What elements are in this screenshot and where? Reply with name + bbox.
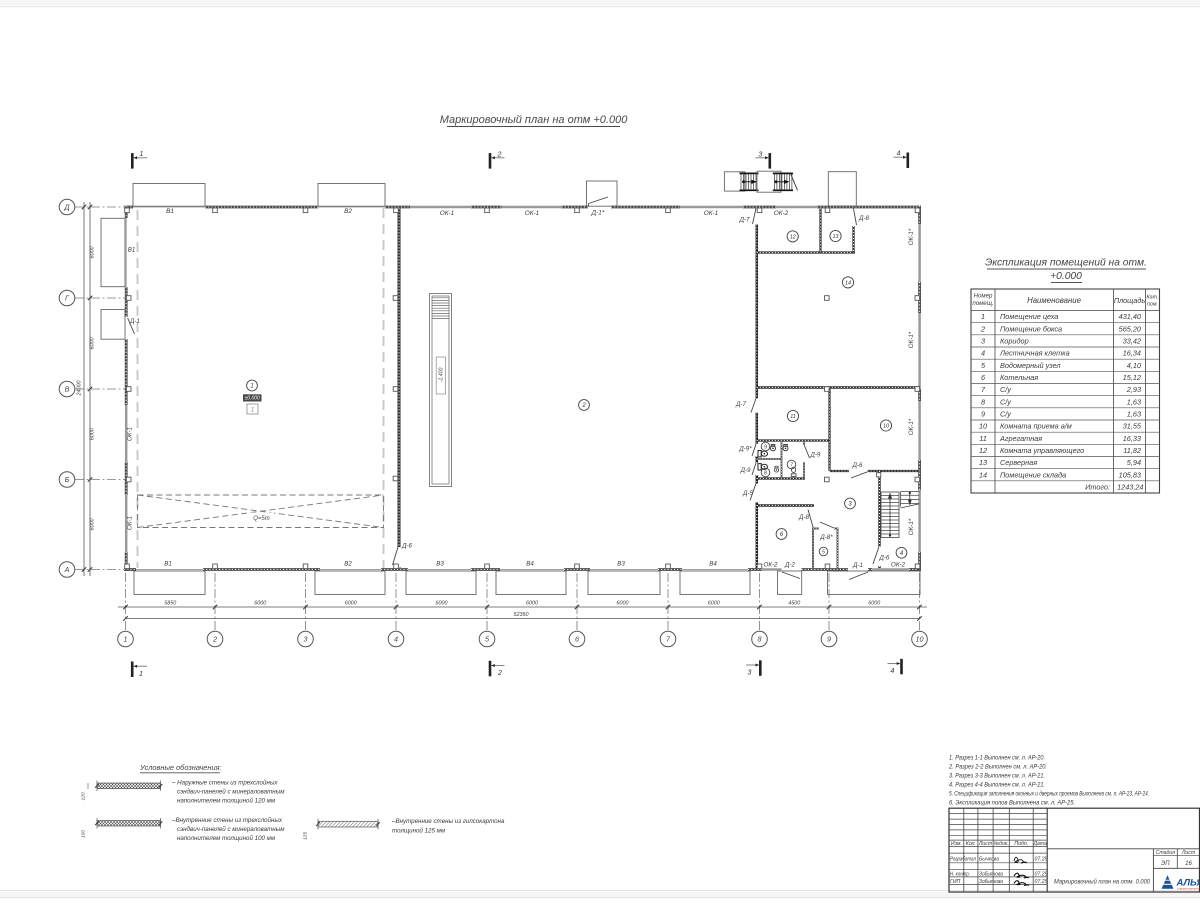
- svg-text:4: 4: [394, 635, 398, 644]
- svg-text:6000: 6000: [90, 519, 96, 531]
- svg-text:В4: В4: [709, 561, 717, 568]
- svg-text:Номер: Номер: [974, 293, 993, 300]
- svg-text:1,63: 1,63: [1127, 410, 1141, 419]
- svg-text:6000: 6000: [345, 601, 357, 607]
- svg-text:13: 13: [979, 458, 987, 467]
- svg-text:Помещение цеха: Помещение цеха: [1000, 312, 1058, 321]
- svg-text:Д-2: Д-2: [784, 562, 795, 569]
- svg-text:Д-1: Д-1: [129, 318, 140, 325]
- svg-text:Площадь: Площадь: [1114, 296, 1145, 305]
- svg-text:С/у: С/у: [1000, 385, 1012, 394]
- svg-text:С/у: С/у: [1000, 397, 1012, 406]
- svg-text:9: 9: [981, 410, 985, 419]
- svg-text:6000: 6000: [436, 601, 448, 607]
- svg-text:Д-7: Д-7: [735, 401, 746, 408]
- svg-text:6000: 6000: [868, 601, 880, 607]
- svg-text:6000: 6000: [254, 601, 266, 607]
- svg-text:С/у: С/у: [1000, 410, 1012, 419]
- svg-text:ОК-1: ОК-1: [704, 210, 719, 217]
- svg-text:Лист: Лист: [1181, 850, 1196, 856]
- svg-text:сэндвич-панелей с минераловатн: сэндвич-панелей с минераловатным: [177, 789, 285, 796]
- svg-text:В: В: [65, 385, 70, 394]
- svg-text:4500: 4500: [788, 601, 800, 607]
- svg-text:Агрегатная: Агрегатная: [999, 434, 1042, 443]
- svg-text:В2: В2: [344, 208, 352, 215]
- svg-text:Серверная: Серверная: [1000, 458, 1037, 467]
- svg-text:+0.000: +0.000: [1050, 271, 1082, 282]
- svg-text:Подп.: Подп.: [1014, 841, 1028, 847]
- svg-text:07.25: 07.25: [1035, 872, 1048, 878]
- svg-text:№док.: №док.: [994, 841, 1009, 847]
- svg-text:Коридор: Коридор: [1000, 337, 1029, 346]
- svg-text:наполнителем толщиной 100 мм: наполнителем толщиной 100 мм: [177, 835, 276, 842]
- svg-text:2: 2: [212, 635, 217, 644]
- svg-text:– Наружные стены из трехслойны: – Наружные стены из трехслойных: [171, 780, 278, 787]
- svg-text:15,12: 15,12: [1123, 373, 1141, 382]
- svg-text:1: 1: [140, 151, 144, 158]
- svg-text:Д: Д: [63, 203, 69, 212]
- svg-text:ОК-2: ОК-2: [774, 210, 789, 217]
- svg-text:Д-8*: Д-8*: [819, 534, 833, 541]
- svg-text:4: 4: [890, 668, 894, 675]
- svg-text:Кол.: Кол.: [966, 841, 976, 847]
- svg-text:31,55: 31,55: [1123, 422, 1142, 431]
- svg-text:Комната управляющего: Комната управляющего: [1000, 446, 1084, 455]
- svg-text:52350: 52350: [514, 612, 529, 618]
- svg-text:5. Спецификация заполнения око: 5. Спецификация заполнения оконных и две…: [949, 790, 1149, 798]
- svg-text:В4: В4: [526, 561, 534, 568]
- svg-text:Д-7: Д-7: [739, 217, 750, 224]
- svg-text:ОК-1: ОК-1: [525, 210, 540, 217]
- svg-text:Д-1: Д-1: [852, 562, 863, 569]
- svg-text:Разработал: Разработал: [950, 857, 976, 863]
- svg-text:Лестничная клетка: Лестничная клетка: [999, 349, 1070, 358]
- svg-text:2,93: 2,93: [1126, 385, 1141, 394]
- svg-text:07.25: 07.25: [1035, 857, 1048, 863]
- svg-text:11: 11: [790, 414, 796, 420]
- svg-text:6000: 6000: [90, 428, 96, 440]
- svg-text:9: 9: [827, 635, 831, 644]
- svg-text:105,83: 105,83: [1119, 470, 1141, 479]
- svg-text:6000: 6000: [90, 247, 96, 259]
- svg-text:Помещение бокса: Помещение бокса: [1000, 324, 1062, 333]
- svg-text:Д-9: Д-9: [740, 467, 751, 474]
- svg-text:Q=5т: Q=5т: [253, 516, 270, 522]
- svg-text:Бычкова: Бычкова: [979, 857, 999, 863]
- svg-text:16,34: 16,34: [1123, 349, 1141, 358]
- svg-text:Экспликация помещений на отм.: Экспликация помещений на отм.: [985, 258, 1147, 269]
- svg-text:2: 2: [581, 403, 586, 409]
- svg-text:6000: 6000: [708, 601, 720, 607]
- svg-text:12: 12: [790, 235, 796, 241]
- svg-text:Изм.: Изм.: [951, 841, 962, 847]
- svg-text:11: 11: [979, 434, 987, 443]
- svg-text:Д-5: Д-5: [742, 490, 753, 497]
- svg-text:помещ.: помещ.: [972, 300, 993, 307]
- svg-text:565,20: 565,20: [1119, 324, 1141, 333]
- svg-text:4: 4: [981, 349, 985, 358]
- svg-text:В2: В2: [344, 561, 352, 568]
- svg-text:6: 6: [575, 635, 579, 644]
- svg-text:07.25: 07.25: [1035, 879, 1048, 885]
- svg-text:125: 125: [303, 832, 309, 840]
- svg-text:±0.000: ±0.000: [245, 396, 260, 402]
- svg-text:Дата: Дата: [1032, 841, 1047, 847]
- svg-text:10: 10: [916, 635, 924, 644]
- svg-text:1: 1: [139, 671, 143, 678]
- svg-text:6000: 6000: [90, 338, 96, 350]
- svg-text:9: 9: [764, 444, 767, 450]
- svg-text:Д-6: Д-6: [879, 555, 890, 562]
- svg-text:1243,24: 1243,24: [1117, 483, 1143, 492]
- svg-text:наполнителем толщиной 120 мм: наполнителем толщиной 120 мм: [177, 798, 276, 805]
- svg-text:4: 4: [897, 151, 901, 158]
- svg-text:–Внутренние стены из трехслойн: –Внутренние стены из трехслойных: [171, 817, 283, 824]
- svg-text:Итого:: Итого:: [1085, 483, 1110, 492]
- svg-text:33,42: 33,42: [1123, 337, 1141, 346]
- svg-text:–Внутренние стены из гипсокарт: –Внутренние стены из гипсокартона: [391, 818, 505, 825]
- svg-text:Д-8: Д-8: [858, 215, 869, 222]
- svg-text:Кат.: Кат.: [1147, 295, 1159, 301]
- svg-text:11,82: 11,82: [1123, 446, 1141, 455]
- svg-text:100: 100: [81, 830, 87, 838]
- svg-text:3: 3: [748, 669, 752, 676]
- svg-text:Водомерный узел: Водомерный узел: [1000, 361, 1061, 370]
- svg-text:1: 1: [250, 384, 253, 390]
- svg-text:Наименование: Наименование: [1027, 296, 1081, 305]
- svg-text:10: 10: [979, 422, 987, 431]
- svg-text:ЭП: ЭП: [1161, 861, 1170, 867]
- svg-text:1: 1: [124, 635, 128, 644]
- svg-text:Зобьянова: Зобьянова: [979, 879, 1003, 885]
- svg-text:В1: В1: [166, 208, 174, 215]
- svg-text:ОК-1*: ОК-1*: [908, 418, 915, 435]
- svg-text:6000: 6000: [526, 601, 538, 607]
- svg-text:Условные обозначения:: Условные обозначения:: [139, 763, 222, 772]
- svg-text:13: 13: [833, 234, 839, 240]
- svg-text:сэндвич-панелей с минераловатн: сэндвич-панелей с минераловатным: [177, 826, 285, 833]
- svg-text:1: 1: [251, 408, 254, 414]
- svg-text:Комната приема а/м: Комната приема а/м: [1000, 422, 1072, 431]
- svg-text:В3: В3: [436, 561, 444, 568]
- svg-text:пом.: пом.: [1147, 302, 1158, 308]
- svg-text:Котельная: Котельная: [1000, 373, 1038, 382]
- svg-text:В1: В1: [128, 247, 136, 254]
- svg-text:16: 16: [1185, 861, 1192, 867]
- svg-text:Помещение склада: Помещение склада: [1000, 470, 1066, 479]
- svg-text:2: 2: [980, 324, 985, 333]
- svg-text:16,33: 16,33: [1123, 434, 1141, 443]
- svg-text:4,10: 4,10: [1127, 361, 1141, 370]
- svg-text:-1.400: -1.400: [439, 368, 445, 383]
- svg-text:8: 8: [764, 470, 767, 476]
- svg-text:120: 120: [81, 792, 87, 800]
- svg-text:12: 12: [979, 446, 987, 455]
- svg-text:В3: В3: [617, 561, 625, 568]
- svg-text:Д-9: Д-9: [810, 452, 821, 459]
- svg-text:Стадия: Стадия: [1156, 850, 1176, 856]
- svg-text:1,63: 1,63: [1127, 397, 1141, 406]
- svg-text:ОК-1*: ОК-1*: [908, 228, 915, 245]
- svg-text:8: 8: [758, 635, 762, 644]
- svg-text:2: 2: [497, 151, 502, 158]
- svg-text:Д-8: Д-8: [798, 514, 809, 521]
- svg-text:ОК-2: ОК-2: [891, 562, 906, 569]
- svg-text:толщиной 125 мм: толщиной 125 мм: [392, 828, 446, 835]
- svg-text:4. Разрез 4-4 Выполнен см. л.: 4. Разрез 4-4 Выполнен см. л. АР-21.: [949, 782, 1045, 789]
- svg-text:Маркировочный план на отм +0.0: Маркировочный план на отм +0.000: [440, 114, 629, 126]
- svg-text:5850: 5850: [164, 601, 176, 607]
- svg-text:3: 3: [981, 337, 985, 346]
- svg-text:2. Разрез 2-2 Выполнен см. л.: 2. Разрез 2-2 Выполнен см. л. АР-20.: [948, 764, 1047, 771]
- svg-text:3: 3: [758, 151, 762, 158]
- svg-text:ОК-1: ОК-1: [440, 210, 455, 217]
- svg-text:ГИП: ГИП: [950, 879, 961, 885]
- svg-text:24000: 24000: [77, 381, 83, 397]
- svg-text:6000: 6000: [617, 601, 629, 607]
- svg-text:ОК-1*: ОК-1*: [908, 518, 915, 535]
- svg-text:строительная компания: строительная компания: [1177, 887, 1200, 891]
- svg-text:Б: Б: [65, 475, 70, 484]
- svg-text:Д-1*: Д-1*: [591, 210, 605, 217]
- svg-text:Д-6: Д-6: [852, 462, 863, 469]
- svg-text:1. Разрез 1-1 Выполнен см. л.: 1. Разрез 1-1 Выполнен см. л. АР-20.: [949, 755, 1045, 762]
- svg-text:Н. контр.: Н. контр.: [950, 872, 970, 878]
- svg-text:1: 1: [981, 312, 985, 321]
- svg-text:5: 5: [822, 549, 825, 555]
- svg-text:А: А: [64, 565, 70, 574]
- svg-text:Зобьянова: Зобьянова: [979, 872, 1003, 878]
- svg-text:ОК-1*: ОК-1*: [908, 331, 915, 348]
- svg-text:431,40: 431,40: [1119, 312, 1141, 321]
- svg-text:3: 3: [304, 635, 308, 644]
- svg-text:10: 10: [883, 424, 889, 430]
- svg-text:ОК-1: ОК-1: [127, 427, 134, 441]
- svg-text:2: 2: [497, 670, 502, 677]
- svg-text:6. Экспликация полов Выполнена: 6. Экспликация полов Выполнена см. л. АР…: [949, 800, 1075, 807]
- svg-text:В1: В1: [164, 561, 172, 568]
- svg-text:ОК-1: ОК-1: [127, 516, 134, 530]
- svg-text:Д-6: Д-6: [401, 543, 412, 550]
- svg-text:5,94: 5,94: [1127, 458, 1141, 467]
- svg-text:ОК-2: ОК-2: [764, 562, 779, 569]
- svg-text:Маркировочный план на отм. 0.0: Маркировочный план на отм. 0.000: [1054, 878, 1150, 886]
- svg-text:Лист: Лист: [978, 841, 993, 847]
- svg-text:Д-9*: Д-9*: [738, 446, 752, 453]
- svg-text:14: 14: [979, 470, 987, 479]
- svg-text:14: 14: [845, 281, 851, 287]
- svg-text:3. Разрез 3-3 Выполнен см. л.: 3. Разрез 3-3 Выполнен см. л. АР-21.: [949, 773, 1045, 780]
